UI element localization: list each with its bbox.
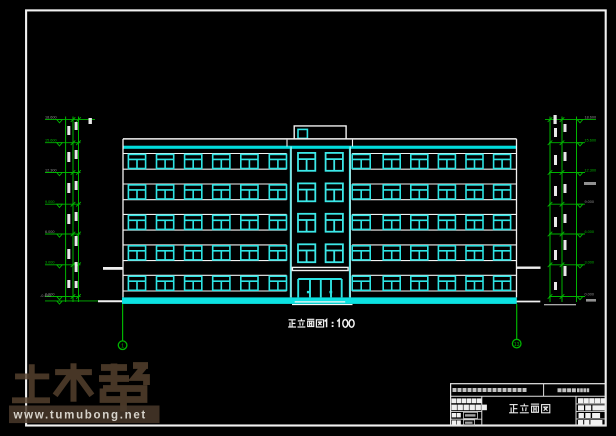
svg-text:6.000: 6.000	[45, 230, 55, 234]
svg-text:-0.450: -0.450	[40, 294, 51, 298]
svg-text:18.600: 18.600	[45, 115, 57, 119]
svg-text:12.300: 12.300	[45, 168, 57, 172]
svg-text:1: 1	[121, 343, 124, 349]
svg-text:15.600: 15.600	[45, 139, 57, 143]
svg-text:9.000: 9.000	[45, 200, 55, 204]
svg-text:18.600: 18.600	[585, 115, 597, 119]
svg-text:www.tumubong.net: www.tumubong.net	[13, 410, 147, 422]
svg-text:0.000: 0.000	[585, 292, 595, 296]
svg-text:15.600: 15.600	[585, 139, 597, 143]
svg-text:3.000: 3.000	[45, 261, 55, 265]
svg-text:12.300: 12.300	[585, 168, 597, 172]
svg-text:3.000: 3.000	[585, 261, 595, 265]
svg-text:9.000: 9.000	[585, 200, 595, 204]
svg-text:6.000: 6.000	[585, 230, 595, 234]
svg-text:13: 13	[514, 342, 520, 348]
